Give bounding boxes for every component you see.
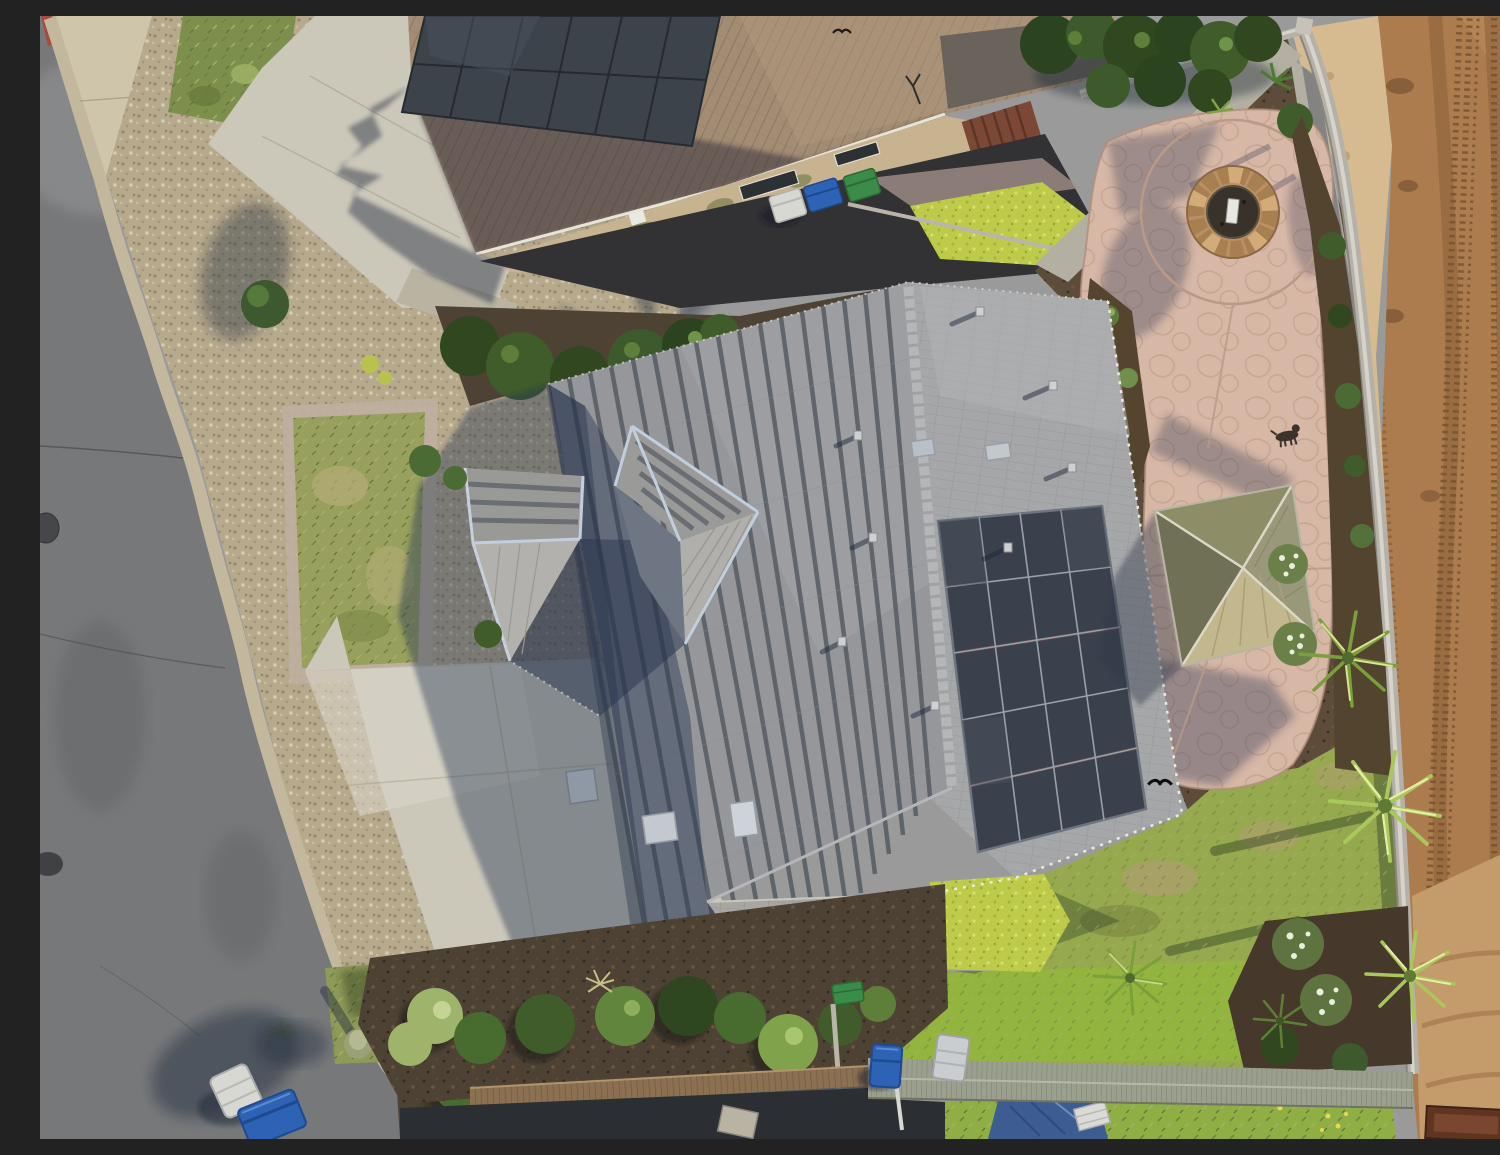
neighbor-house (336, 16, 1126, 308)
planter-box (1425, 1106, 1500, 1139)
shrub (409, 445, 441, 477)
shrub (474, 620, 502, 648)
shrub (443, 466, 467, 490)
fire-pit-burner (1226, 199, 1239, 224)
aerial-photo: Aerial drone photograph: suburban corner… (40, 16, 1500, 1139)
wall-corner (1295, 17, 1314, 36)
aerial-scene (40, 16, 1500, 1139)
utility-box (832, 981, 864, 1005)
